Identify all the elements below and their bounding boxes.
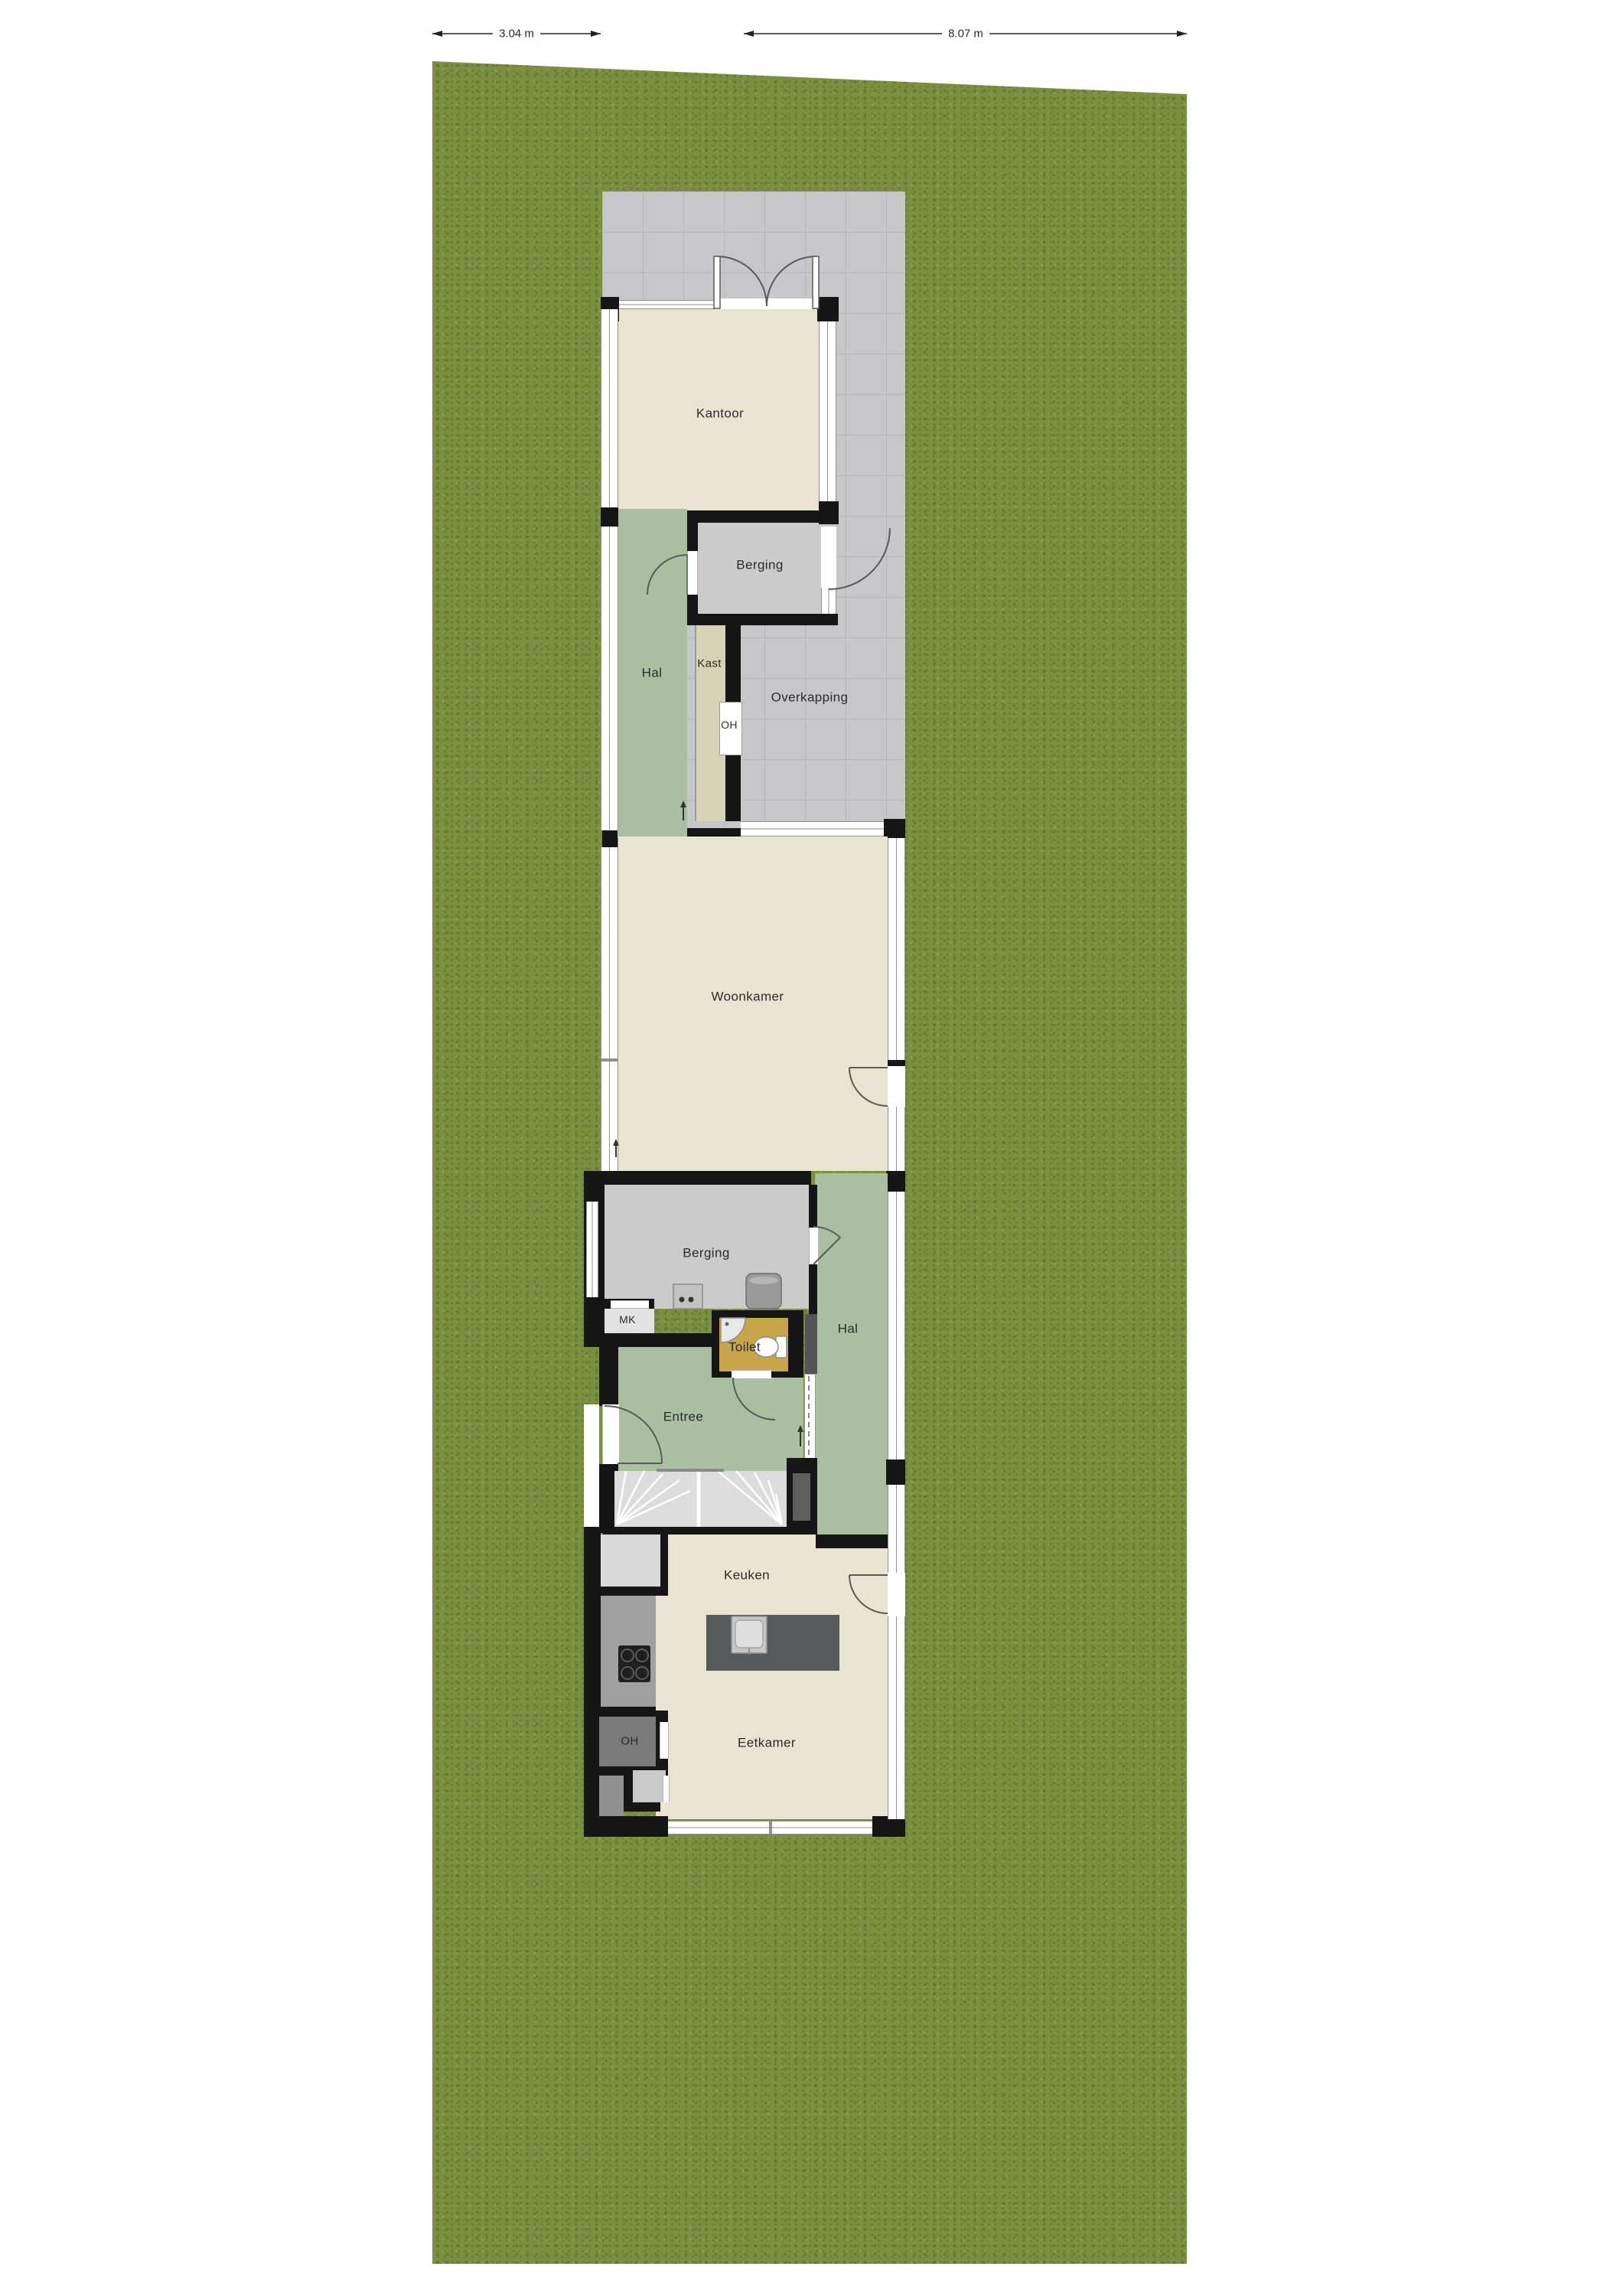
room-label-berging-lower: Berging bbox=[683, 1247, 729, 1260]
woonkamer-right-window bbox=[888, 838, 905, 1060]
corner-post bbox=[884, 819, 905, 838]
hal-lower-right-window-low bbox=[888, 1485, 905, 1548]
berging-upper-door-gap bbox=[687, 551, 698, 595]
corner-post bbox=[602, 830, 618, 847]
window-divider bbox=[601, 1058, 618, 1062]
landing-floor bbox=[601, 1534, 660, 1587]
counter-bottom-wall bbox=[584, 1707, 656, 1717]
berging-hal-wall-low bbox=[809, 1264, 817, 1314]
kast-hal-divider bbox=[695, 625, 696, 821]
woonkamer-left-window bbox=[601, 847, 618, 1171]
eetkamer-right-window bbox=[888, 1616, 905, 1819]
room-label-woonkamer: Woonkamer bbox=[712, 990, 784, 1003]
berging-upper-right-wall bbox=[821, 588, 836, 614]
mk-door-gap bbox=[611, 1300, 649, 1309]
corner-post bbox=[886, 1171, 905, 1192]
store-floor-left bbox=[599, 1776, 624, 1818]
dimension-label-left: 3.04 m bbox=[493, 27, 540, 41]
store-floor-right bbox=[633, 1770, 666, 1802]
bottom-left-wall bbox=[584, 1816, 668, 1837]
room-label-hal-lower: Hal bbox=[838, 1322, 859, 1336]
berging-upper-top-wall bbox=[687, 510, 838, 523]
toilet-door-gap bbox=[732, 1370, 771, 1379]
kantoor-right-window bbox=[819, 321, 836, 501]
room-label-toilet: Toilet bbox=[728, 1341, 761, 1354]
store-divider-h bbox=[624, 1802, 660, 1812]
berging-upper-door-opening bbox=[821, 527, 836, 588]
woonkamer-bottom-wall bbox=[584, 1171, 811, 1185]
berging-hal-door-gap bbox=[809, 1228, 819, 1264]
doorstep bbox=[584, 1404, 599, 1527]
floorplan-page: 3.04 m 8.07 m Kantoor Berging Hal Kast O… bbox=[0, 0, 1623, 2296]
mk-bottom-wall bbox=[584, 1333, 712, 1347]
hal-lower-right-window bbox=[888, 1192, 905, 1459]
store-door-gap bbox=[663, 1776, 670, 1802]
keuken-door-opening bbox=[888, 1573, 905, 1616]
keuken-eetkamer-floor bbox=[656, 1548, 888, 1819]
stairs-right-inner bbox=[793, 1473, 810, 1521]
corner-post bbox=[872, 1816, 905, 1837]
window-post bbox=[888, 1060, 905, 1066]
woonkamer-floor bbox=[618, 837, 888, 1171]
room-label-overkapping: Overkapping bbox=[771, 691, 849, 704]
hal-upper-left-window bbox=[601, 527, 618, 830]
room-label-berging-upper: Berging bbox=[736, 559, 783, 572]
left-wall-lower bbox=[584, 1527, 601, 1837]
room-label-kast: Kast bbox=[697, 658, 722, 670]
kantoor-left-window bbox=[601, 309, 618, 509]
stair-wall bbox=[787, 1458, 817, 1468]
entree-left-wall bbox=[599, 1347, 618, 1406]
entree-door-opening bbox=[602, 1404, 620, 1464]
window-divider bbox=[769, 1821, 772, 1835]
room-label-mk: MK bbox=[619, 1314, 636, 1325]
keuken-floor-upper bbox=[666, 1534, 816, 1548]
room-label-keuken: Keuken bbox=[724, 1569, 770, 1582]
dimension-label-right: 8.07 m bbox=[942, 27, 989, 41]
kantoor-door-gap bbox=[715, 298, 817, 309]
hal-lower-floor bbox=[815, 1173, 888, 1548]
duct-strip bbox=[805, 1314, 817, 1374]
woonkamer-top-window bbox=[741, 821, 884, 837]
room-label-oh-lower: OH bbox=[621, 1736, 638, 1747]
oh-door-gap bbox=[660, 1722, 669, 1759]
berging-upper-bottom-wall bbox=[696, 614, 838, 625]
berging-hal-wall bbox=[809, 1185, 817, 1228]
room-label-entree: Entree bbox=[663, 1411, 704, 1424]
room-label-kantoor: Kantoor bbox=[696, 407, 744, 420]
room-label-hal-upper: Hal bbox=[642, 667, 663, 680]
room-label-eetkamer: Eetkamer bbox=[738, 1737, 796, 1750]
stairs-bottom-wall bbox=[603, 1527, 817, 1534]
corner-post bbox=[601, 507, 618, 527]
glass-partition bbox=[804, 1374, 816, 1459]
room-label-oh-upper: OH bbox=[721, 719, 738, 730]
kitchen-island bbox=[706, 1615, 839, 1671]
keuken-right-window-top bbox=[888, 1548, 905, 1573]
window-post bbox=[886, 1459, 905, 1485]
berging-lower-window bbox=[586, 1202, 598, 1297]
woonkamer-right-window-low bbox=[888, 1107, 905, 1171]
woonkamer-door-opening bbox=[888, 1066, 905, 1107]
stairs-floor bbox=[614, 1471, 787, 1527]
corner-post bbox=[817, 297, 839, 321]
kitchen-counter bbox=[599, 1596, 656, 1711]
